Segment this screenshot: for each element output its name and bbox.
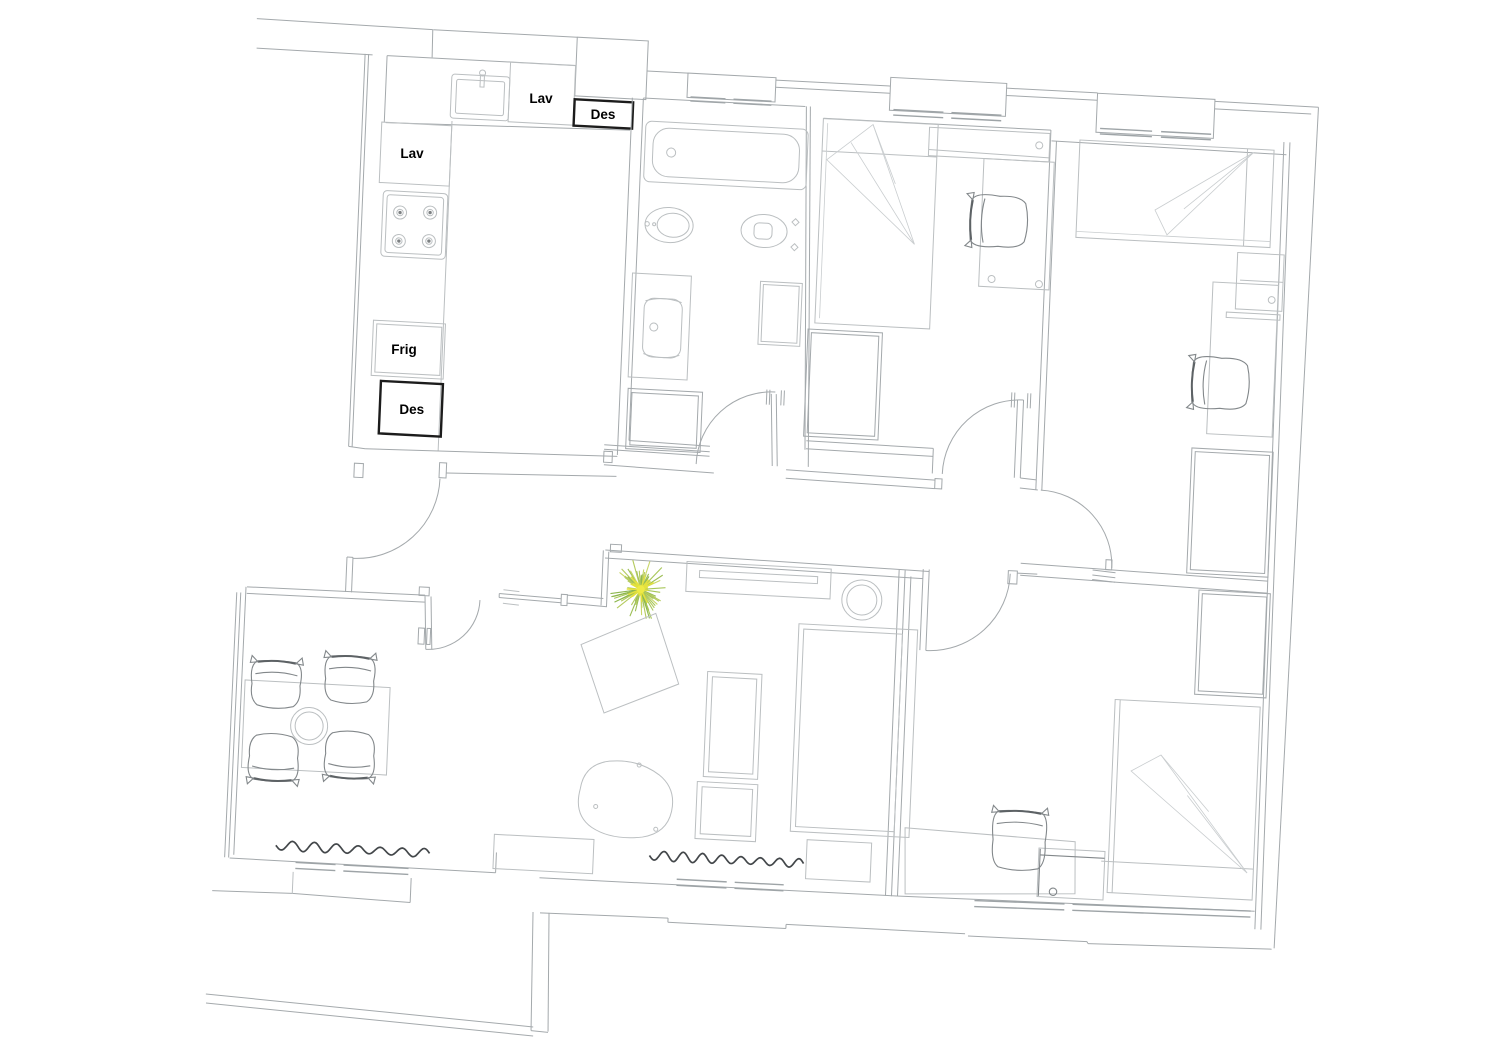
svg-text:Lav: Lav [400, 146, 424, 161]
svg-text:Lav: Lav [529, 91, 553, 106]
svg-text:Des: Des [591, 107, 616, 122]
svg-text:Des: Des [399, 402, 424, 417]
svg-text:Frig: Frig [391, 342, 417, 357]
